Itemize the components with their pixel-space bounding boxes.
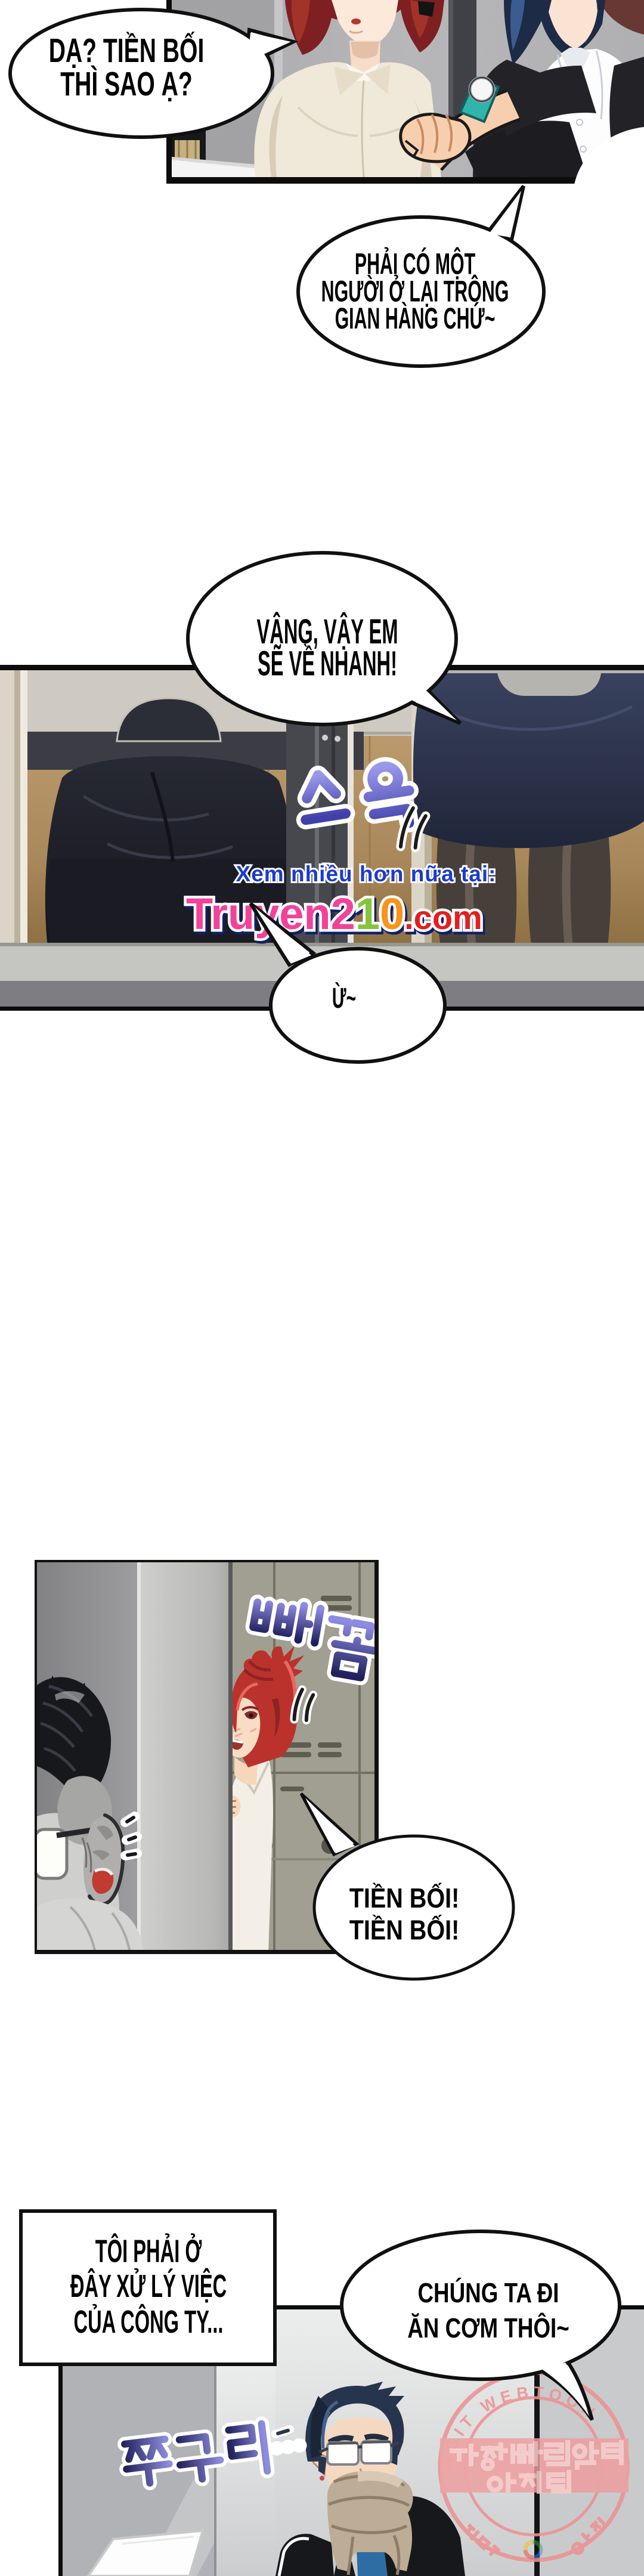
svg-text:TIỀN BỐI!: TIỀN BỐI!	[349, 1915, 460, 1946]
svg-text:Ừ~: Ừ~	[332, 982, 356, 1014]
svg-text:CỦA CÔNG TY...: CỦA CÔNG TY...	[74, 2303, 224, 2340]
svg-text:SẼ VỀ NHANH!: SẼ VỀ NHANH!	[258, 643, 397, 683]
svg-text:TÔI PHẢI Ở: TÔI PHẢI Ở	[95, 2233, 202, 2270]
svg-text:Xem nhiều hơn nữa tại:: Xem nhiều hơn nữa tại:	[236, 862, 497, 886]
svg-text:GIAN HÀNG CHỨ~: GIAN HÀNG CHỨ~	[335, 302, 496, 335]
svg-text:ĐÂY XỬ LÝ VIỆC: ĐÂY XỬ LÝ VIỆC	[70, 2268, 227, 2305]
svg-text:ĂN CƠM THÔI~: ĂN CƠM THÔI~	[407, 2312, 569, 2343]
svg-text:THÌ SAO Ạ?: THÌ SAO Ạ?	[60, 66, 193, 103]
svg-text:CHÚNG TA ĐI: CHÚNG TA ĐI	[417, 2277, 559, 2308]
svg-text:DẠ? TIỀN BỐI: DẠ? TIỀN BỐI	[49, 32, 205, 70]
svg-text:TIỀN BỐI!: TIỀN BỐI!	[349, 1883, 460, 1914]
